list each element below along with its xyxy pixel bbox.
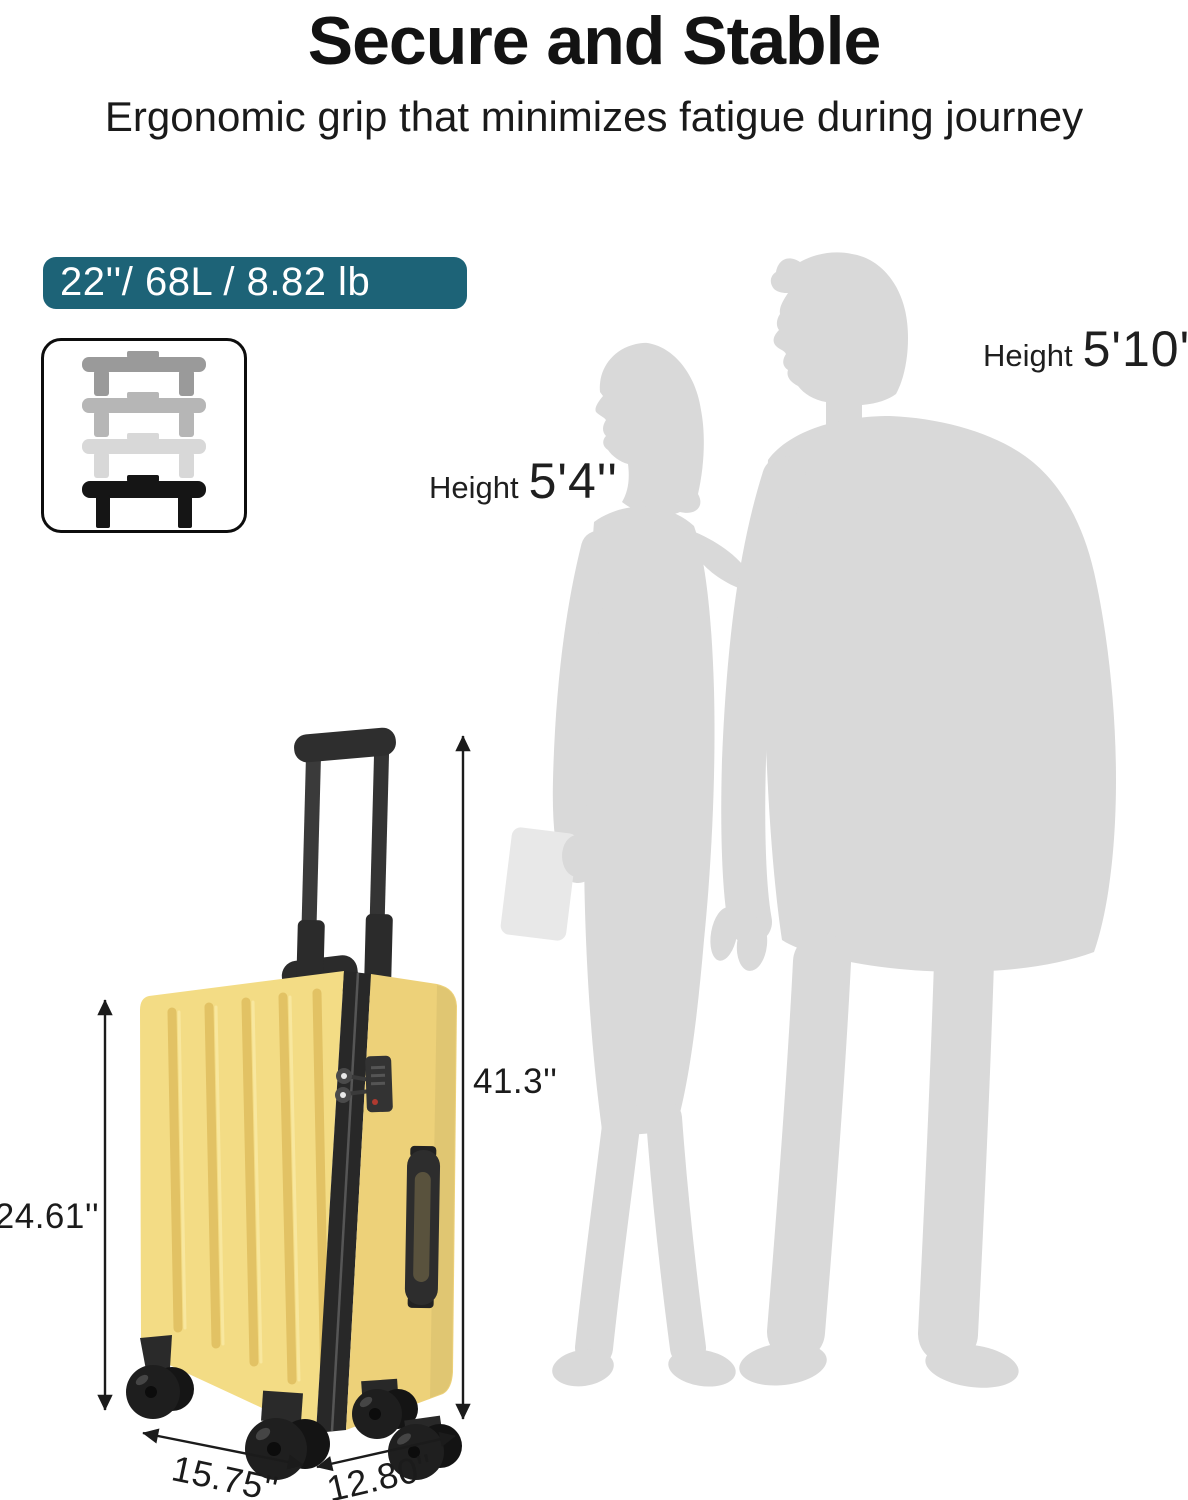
page-title: Secure and Stable	[0, 2, 1188, 80]
height-annotation-man: Height 5'10''	[983, 320, 1188, 378]
height-label-woman: Height	[429, 470, 519, 506]
page-subtitle: Ergonomic grip that minimizes fatigue du…	[0, 92, 1188, 142]
trolley-handle-stages-icon	[45, 343, 243, 528]
height-label-man: Height	[983, 338, 1073, 374]
dimension-label-overall-height: 41.3''	[473, 1062, 557, 1102]
illustration-layer	[0, 0, 1188, 1500]
dimension-label-body-height: 24.61''	[0, 1197, 100, 1237]
man-silhouette	[734, 252, 1116, 1393]
product-infographic: Secure and Stable Ergonomic grip that mi…	[0, 0, 1188, 1500]
height-value-woman: 5'4''	[529, 452, 618, 510]
handle-stages-box	[41, 338, 247, 533]
spec-badge: 22''/ 68L / 8.82 lb	[43, 257, 467, 309]
suitcase-illustration	[126, 727, 462, 1480]
side-handle	[405, 1146, 441, 1309]
height-value-man: 5'10''	[1083, 320, 1188, 378]
height-annotation-woman: Height 5'4''	[429, 452, 618, 510]
